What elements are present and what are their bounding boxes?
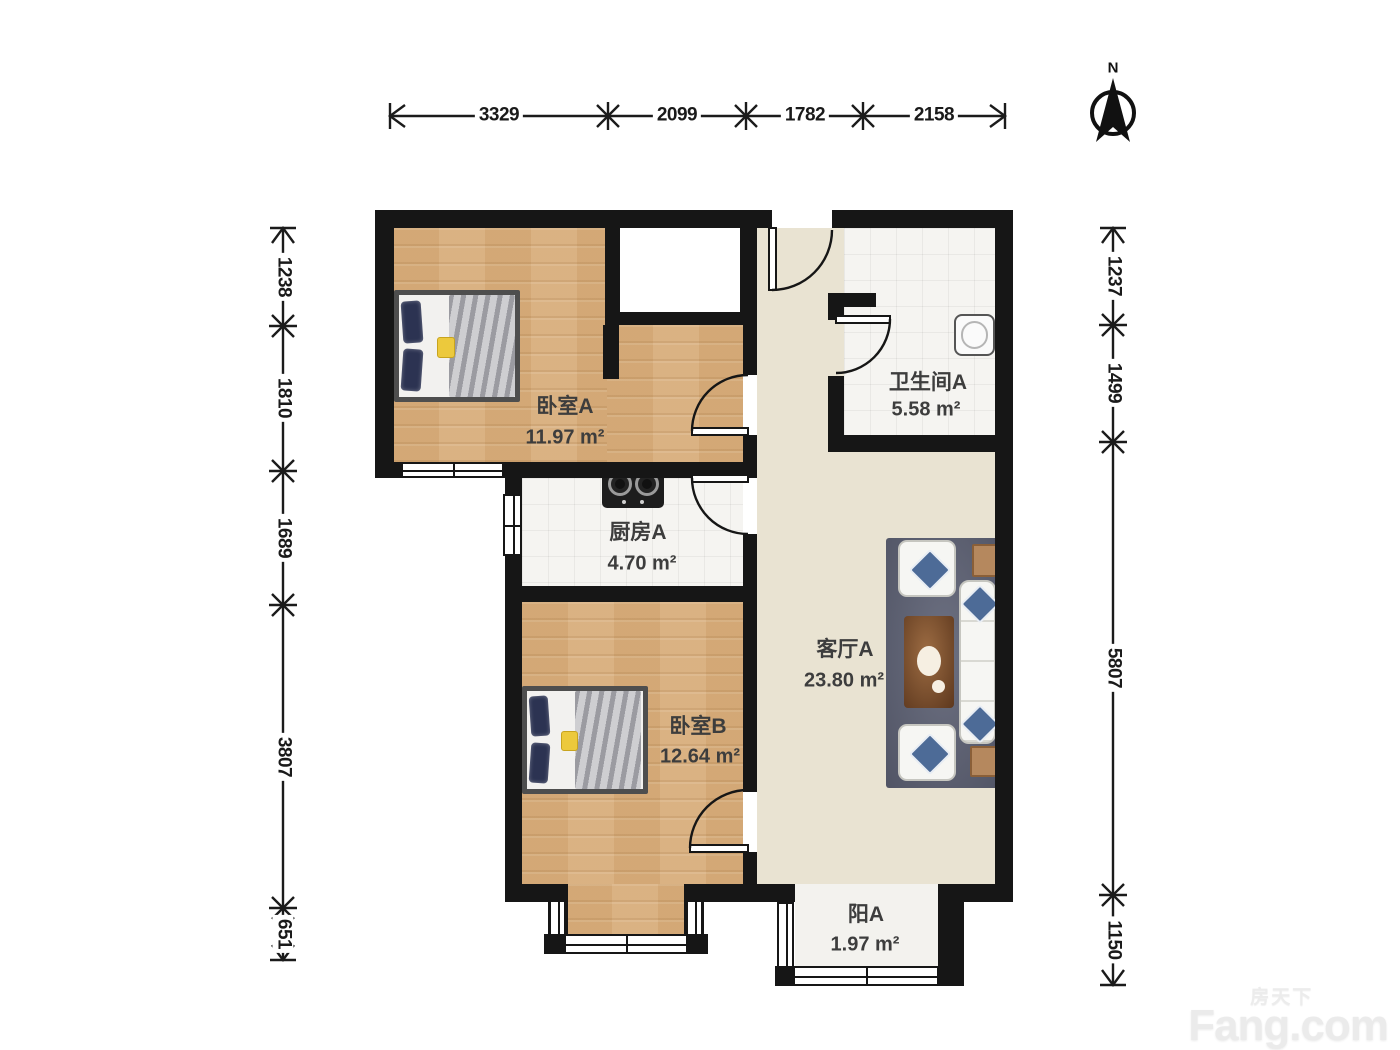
floor-bedroom-a-ext <box>607 325 743 464</box>
wall <box>603 325 619 379</box>
bathtub <box>954 314 995 356</box>
bed-bedroom-a <box>394 290 520 402</box>
armchair <box>898 724 956 781</box>
dim-left-5: 651 <box>273 915 294 953</box>
balcony-side-window <box>777 902 794 968</box>
dim-left-1: 1238 <box>273 253 294 301</box>
wall <box>743 435 757 478</box>
balcony-east-wall <box>938 884 964 986</box>
dim-right-2: 1499 <box>1103 359 1124 407</box>
bed-accessory <box>561 731 578 751</box>
area-living-a: 23.80 m² <box>804 670 884 693</box>
wall <box>505 586 757 602</box>
wall <box>743 534 757 792</box>
bed-bedroom-b <box>522 686 648 794</box>
wall <box>503 462 757 478</box>
wall <box>704 884 795 902</box>
bay-side-window <box>549 900 566 936</box>
dim-left-4: 3807 <box>273 733 294 781</box>
wall <box>375 210 394 478</box>
dim-top-4: 2158 <box>910 106 958 127</box>
cup <box>932 680 945 693</box>
coffee-table <box>904 616 954 708</box>
bathtub-basin <box>961 321 988 349</box>
bed-accessory <box>437 337 455 358</box>
wall <box>828 435 1013 452</box>
label-bedroom-b: 卧室B <box>669 710 726 740</box>
fang-watermark: 房天下 Fang.com <box>1188 989 1388 1046</box>
area-balcony-a: 1.97 m² <box>831 934 900 957</box>
wall <box>743 325 757 375</box>
dim-right-4: 1150 <box>1103 916 1124 963</box>
dim-left-2: 1810 <box>273 374 294 422</box>
wall <box>505 884 550 902</box>
bay-corner <box>686 934 708 954</box>
dim-top-1: 3329 <box>475 106 523 127</box>
blanket <box>449 295 515 397</box>
dim-tick <box>597 102 874 130</box>
label-bathroom-a: 卫生间A <box>889 366 967 396</box>
label-balcony-a: 阳A <box>848 898 884 928</box>
bay-side-window <box>686 900 703 936</box>
sofa-pillow <box>960 704 1000 744</box>
stove-knob <box>622 500 626 504</box>
wall <box>505 555 522 902</box>
chair-pillow <box>909 549 951 591</box>
stove-knob <box>640 500 644 504</box>
pillow <box>529 742 551 783</box>
north-arrow-icon <box>1092 78 1134 142</box>
dim-right-3: 5807 <box>1103 644 1124 692</box>
label-kitchen-a: 厨房A <box>609 516 666 546</box>
bay-corner <box>544 934 566 954</box>
balcony-bottom-window <box>793 966 939 986</box>
wall <box>375 462 402 478</box>
area-kitchen-a: 4.70 m² <box>608 553 677 576</box>
window-kitchen <box>503 494 522 556</box>
window-bedroom-a <box>401 462 504 478</box>
area-bathroom-a: 5.58 m² <box>892 399 961 422</box>
dim-right-1: 1237 <box>1103 252 1124 300</box>
sofa <box>959 580 996 744</box>
wall <box>828 297 844 320</box>
chair-pillow <box>909 733 951 775</box>
wall <box>995 210 1013 902</box>
armchair <box>898 540 956 597</box>
bay-bottom-window <box>564 934 688 954</box>
balcony-corner <box>775 966 794 986</box>
label-living-a: 客厅A <box>816 633 873 663</box>
dim-left-3: 1689 <box>273 514 294 562</box>
label-bedroom-a: 卧室A <box>536 390 593 420</box>
sofa-pillow <box>960 584 1000 624</box>
dim-top-2: 2099 <box>653 106 701 127</box>
pillow <box>529 695 551 736</box>
area-bedroom-b: 12.64 m² <box>660 746 740 769</box>
wall <box>832 210 1013 228</box>
area-bedroom-a: 11.97 m² <box>526 427 605 450</box>
wall <box>505 462 522 495</box>
pillow <box>401 348 424 391</box>
floor-bay-window <box>566 884 686 934</box>
north-label: N <box>1108 60 1119 77</box>
pillow <box>401 300 424 343</box>
dim-top-3: 1782 <box>781 106 829 127</box>
watermark-en: Fang.com <box>1188 1006 1388 1046</box>
floorplan-canvas: 卧室A 11.97 m² 卫生间A 5.58 m² 厨房A 4.70 m² 卧室… <box>0 0 1400 1050</box>
blanket <box>575 691 641 789</box>
duct-shaft-inner <box>620 228 740 312</box>
wall <box>828 376 844 437</box>
plate <box>917 646 941 676</box>
